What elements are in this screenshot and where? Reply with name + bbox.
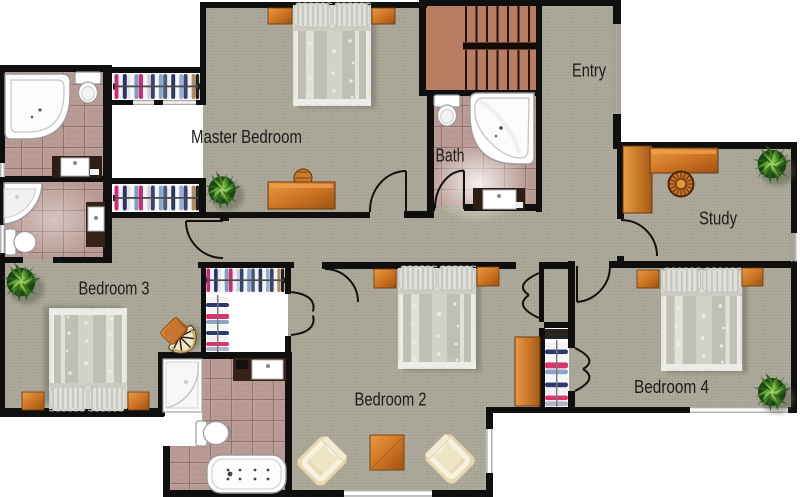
svg-text:Bedroom 2: Bedroom 2: [355, 389, 427, 410]
svg-text:Master Bedroom: Master Bedroom: [191, 126, 302, 147]
svg-text:Study: Study: [699, 208, 738, 229]
svg-text:Bedroom 4: Bedroom 4: [634, 376, 709, 397]
svg-text:Entry: Entry: [572, 60, 607, 81]
svg-text:Bedroom 3: Bedroom 3: [79, 278, 150, 299]
svg-text:Bath: Bath: [436, 145, 465, 166]
